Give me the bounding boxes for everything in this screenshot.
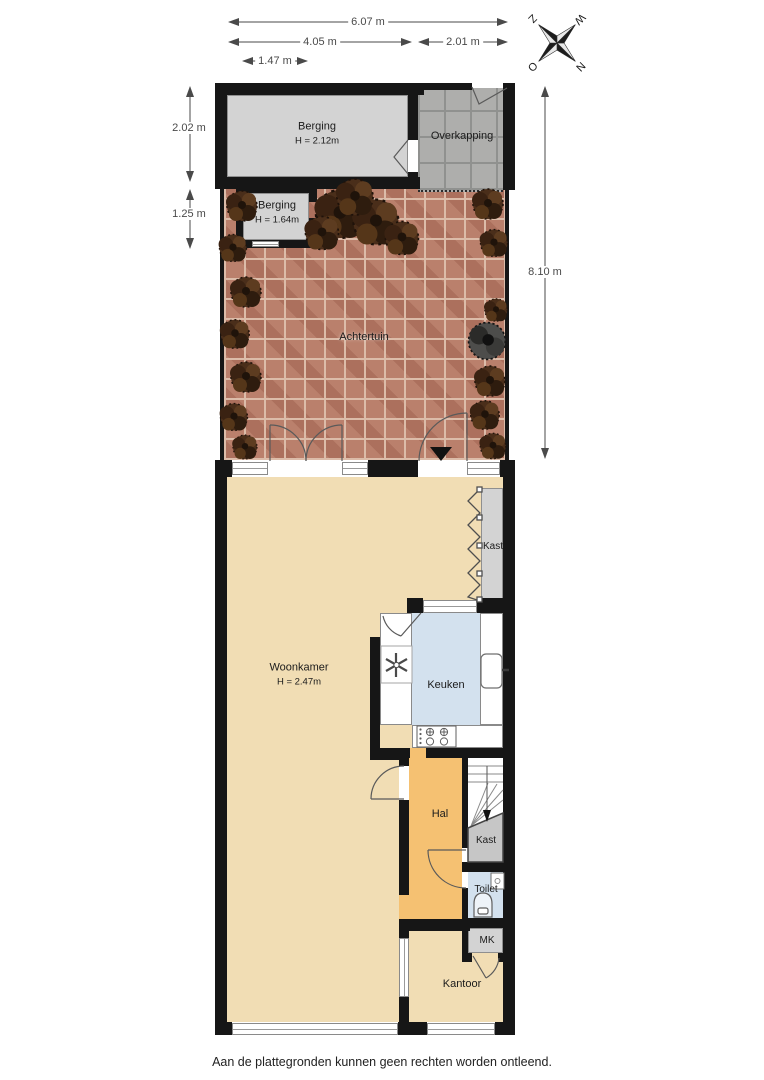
garden-fence-right [505,188,509,460]
wall [215,83,227,189]
disclaimer-text: Aan de plattegronden kunnen geen rechten… [212,1055,552,1069]
wall [399,800,409,895]
hal-floor [408,758,462,919]
kitchen-counter-top [423,600,477,613]
garden-window-3 [467,462,500,475]
dim-width-left: 4.05 m [300,36,340,48]
wall [408,172,418,189]
wall [215,1022,232,1035]
dim-garden-depth: 8.10 m [525,266,565,278]
room-label-hal: Hal [432,808,449,822]
wall [462,953,472,962]
garden-fence-left [220,186,224,460]
wall [407,598,423,613]
wall [236,185,317,193]
room-label-berging-groot: Berging H = 2.12m [295,120,339,148]
kantoor-interior-window [399,938,409,997]
wall [408,90,418,140]
street-window-1 [232,1023,398,1035]
room-label-meterkast: MK [480,935,495,948]
garden-window-2 [342,462,368,475]
wall [399,997,409,1022]
kitchen-counter-bottom [412,725,503,748]
wall [462,862,503,872]
wall [370,637,380,758]
compass-west-label: W [571,11,587,27]
wall [399,919,470,931]
wall [309,193,317,202]
room-label-keuken: Keuken [427,679,464,693]
room-label-kantoor: Kantoor [443,978,482,992]
compass-icon: N O Z W [501,0,612,98]
wall [418,83,472,90]
wall [368,460,418,477]
kitchen-counter-right [480,613,503,725]
compass-north-label: N [573,59,587,73]
compass-east-label: O [525,59,540,74]
room-label-woonkamer: Woonkamer H = 2.47m [269,661,328,689]
wall [498,953,503,962]
room-label-kast-trap: Kast [476,835,496,848]
street-window-2 [427,1023,495,1035]
back-door-opening [418,460,467,477]
dim-berging-depth: 2.02 m [169,122,209,134]
dim-width-small: 1.47 m [255,55,295,67]
kitchen-counter-left [380,613,412,725]
garden-window-1 [232,462,268,475]
wall [215,83,424,95]
wall [503,83,515,190]
compass-south-label: Z [525,12,538,25]
wall [500,460,515,477]
wall [215,460,232,477]
wall [495,1022,515,1035]
house-wall-left [215,460,227,1035]
keuken-floor [412,613,480,725]
room-label-kast-woonkamer: Kast [483,541,503,554]
room-label-toilet: Toilet [474,884,497,897]
hal-door-opening [399,766,409,800]
dim-width-right: 2.01 m [443,36,483,48]
room-label-achtertuin: Achtertuin [339,331,389,345]
room-label-overkapping: Overkapping [431,130,493,144]
dim-total-width: 6.07 m [348,16,388,28]
dim-berging-klein-depth: 1.25 m [169,208,209,220]
wall [398,1022,427,1035]
wall [399,748,409,766]
french-door-opening [268,460,342,477]
wall [236,185,243,248]
stairs-floor [468,758,503,828]
room-label-berging-klein: Berging H = 1.64m [255,199,299,227]
berging-window [252,241,279,247]
floor-plan: N O Z W [0,0,764,1080]
wall [477,598,503,613]
